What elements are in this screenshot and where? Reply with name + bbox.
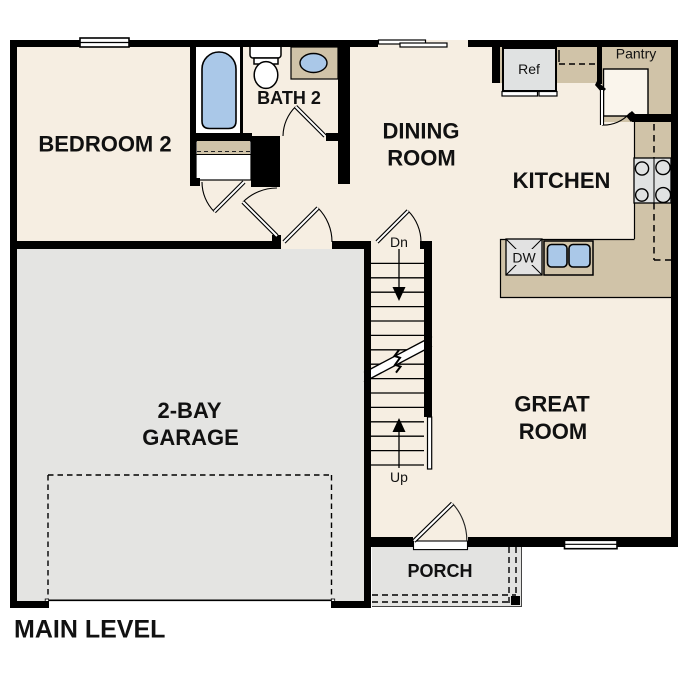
svg-text:2-BAY: 2-BAY xyxy=(158,398,222,423)
svg-text:Up: Up xyxy=(390,469,408,485)
svg-text:Pantry: Pantry xyxy=(616,46,656,62)
svg-text:Ref: Ref xyxy=(518,61,540,77)
svg-text:BEDROOM 2: BEDROOM 2 xyxy=(38,132,171,157)
svg-text:GREAT: GREAT xyxy=(514,392,590,417)
svg-text:BATH 2: BATH 2 xyxy=(257,88,321,108)
svg-text:ROOM: ROOM xyxy=(387,146,455,171)
svg-text:MAIN LEVEL: MAIN LEVEL xyxy=(14,616,165,644)
svg-text:GARAGE: GARAGE xyxy=(142,425,239,450)
svg-text:PORCH: PORCH xyxy=(407,561,472,581)
svg-text:KITCHEN: KITCHEN xyxy=(513,168,611,193)
svg-text:ROOM: ROOM xyxy=(519,419,587,444)
svg-text:DINING: DINING xyxy=(383,119,460,144)
svg-text:DW: DW xyxy=(512,250,536,266)
svg-text:Dn: Dn xyxy=(390,234,408,250)
